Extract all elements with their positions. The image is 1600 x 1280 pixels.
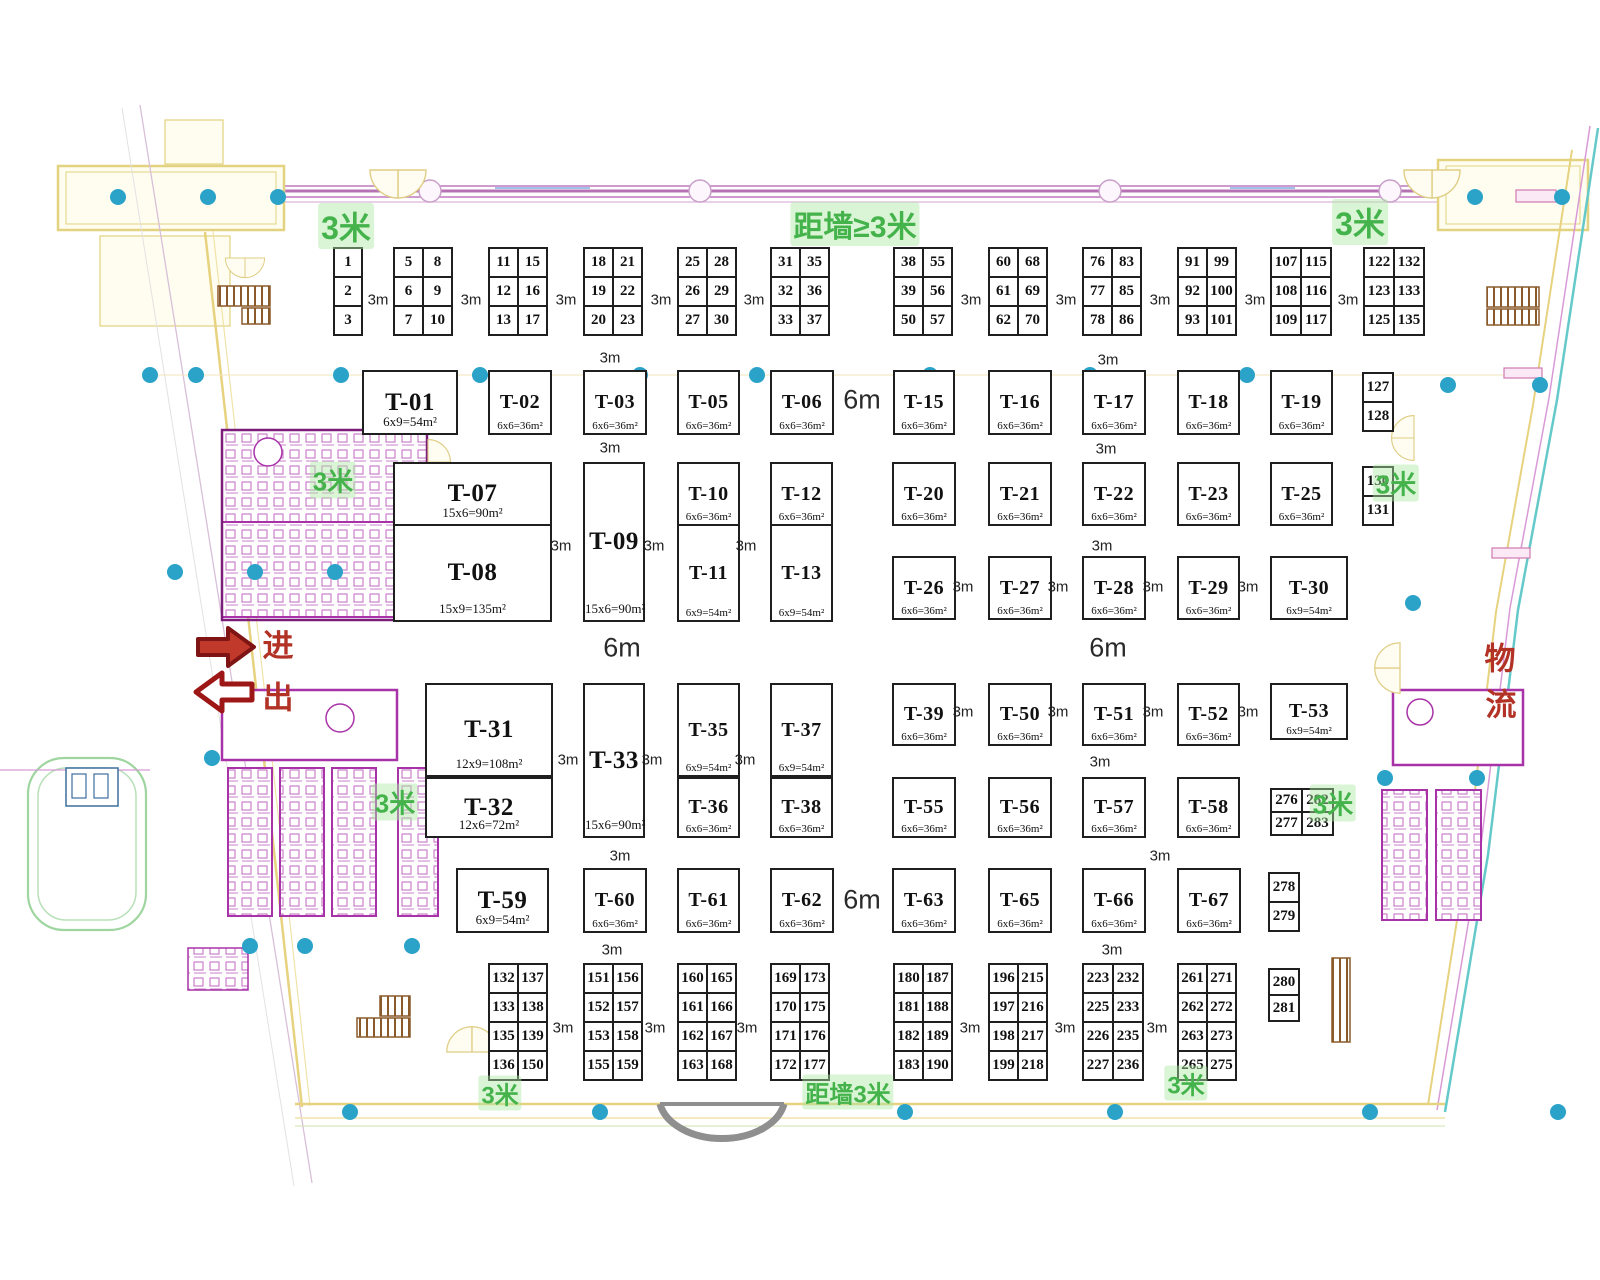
booth-T-01[interactable]: T-016x9=54m² <box>362 370 458 435</box>
booth-T-13[interactable]: T-136x9=54m² <box>770 524 833 622</box>
booth-id: T-06 <box>782 391 822 414</box>
left-ramp <box>0 758 150 930</box>
column-dot <box>749 367 765 383</box>
booth-cell-13[interactable]: 13 <box>488 305 519 336</box>
booth-cell-235[interactable]: 235 <box>1112 1021 1144 1052</box>
booth-cell-281[interactable]: 281 <box>1268 994 1300 1022</box>
booth-cell-60[interactable]: 60 <box>988 247 1019 278</box>
wall-distance-label: 3米 <box>478 1076 521 1111</box>
booth-T-66[interactable]: T-666x6=36m² <box>1082 868 1146 933</box>
booth-cell-190[interactable]: 190 <box>922 1050 953 1081</box>
column-dot <box>897 1104 913 1120</box>
booth-cell-278[interactable]: 278 <box>1268 872 1300 903</box>
booth-cell-76[interactable]: 76 <box>1082 247 1113 278</box>
exit-label: 出 <box>263 673 294 718</box>
booth-T-22[interactable]: T-226x6=36m² <box>1082 462 1146 526</box>
booth-cell-31[interactable]: 31 <box>770 247 801 278</box>
booth-T-21[interactable]: T-216x6=36m² <box>988 462 1052 526</box>
booth-cell-273[interactable]: 273 <box>1206 1021 1237 1052</box>
booth-cell-187[interactable]: 187 <box>922 963 953 994</box>
booth-id: T-07 <box>448 480 498 508</box>
booth-T-59[interactable]: T-596x9=54m² <box>456 868 549 933</box>
wall-distance-label: 3米 <box>1332 199 1388 245</box>
booth-cell-133[interactable]: 133 <box>1393 276 1425 307</box>
booth-cell-68[interactable]: 68 <box>1017 247 1048 278</box>
booth-id: T-27 <box>1000 577 1040 600</box>
booth-id: T-55 <box>904 796 944 819</box>
booth-cell-162[interactable]: 162 <box>677 1021 708 1052</box>
booth-cell-108[interactable]: 108 <box>1270 276 1302 307</box>
booth-size: 6x6=36m² <box>990 731 1050 743</box>
booth-cell-17[interactable]: 17 <box>517 305 548 336</box>
booth-T-60[interactable]: T-606x6=36m² <box>583 868 647 933</box>
booth-size: 6x6=36m² <box>1084 605 1144 617</box>
booth-cell-215[interactable]: 215 <box>1017 963 1048 994</box>
booth-cell-122[interactable]: 122 <box>1363 247 1395 278</box>
booth-size: 6x9=54m² <box>1272 725 1346 737</box>
booth-cell-101[interactable]: 101 <box>1206 305 1237 336</box>
booth-size: 6x6=36m² <box>990 511 1050 523</box>
booth-cell-100[interactable]: 100 <box>1206 276 1237 307</box>
booth-cell-176[interactable]: 176 <box>799 1021 830 1052</box>
booth-cell-29[interactable]: 29 <box>706 276 737 307</box>
booth-cell-36[interactable]: 36 <box>799 276 830 307</box>
booth-id: T-67 <box>1189 889 1229 912</box>
booth-cell-32[interactable]: 32 <box>770 276 801 307</box>
booth-id: T-17 <box>1094 391 1134 414</box>
booth-cell-77[interactable]: 77 <box>1082 276 1113 307</box>
booth-T-63[interactable]: T-636x6=36m² <box>892 868 956 933</box>
booth-id: T-16 <box>1000 391 1040 414</box>
booth-cell-115[interactable]: 115 <box>1300 247 1332 278</box>
booth-T-31[interactable]: T-3112x9=108m² <box>425 683 553 777</box>
booth-size: 6x6=36m² <box>1179 918 1239 930</box>
booth-size: 6x6=36m² <box>1084 511 1144 523</box>
wall-distance-label: 3米 <box>310 462 356 499</box>
booth-cell-153[interactable]: 153 <box>583 1021 614 1052</box>
booth-cell-216[interactable]: 216 <box>1017 992 1048 1023</box>
booth-size: 6x6=36m² <box>679 420 738 432</box>
booth-cell-8[interactable]: 8 <box>422 247 453 278</box>
booth-size: 6x6=36m² <box>990 918 1050 930</box>
booth-T-03[interactable]: T-036x6=36m² <box>583 370 647 435</box>
booth-T-67[interactable]: T-676x6=36m² <box>1177 868 1241 933</box>
dimension-label: 3m <box>1143 704 1164 721</box>
booth-T-27[interactable]: T-276x6=36m² <box>988 556 1052 620</box>
booth-cell-30[interactable]: 30 <box>706 305 737 336</box>
booth-cell-7[interactable]: 7 <box>393 305 424 336</box>
booth-id: T-35 <box>688 719 728 742</box>
booth-id: T-61 <box>688 889 728 912</box>
wall-distance-label: 3米 <box>372 784 418 821</box>
booth-cell-21[interactable]: 21 <box>612 247 643 278</box>
dimension-label: 3m <box>1092 538 1113 555</box>
booth-cell-35[interactable]: 35 <box>799 247 830 278</box>
booth-id: T-52 <box>1188 703 1228 726</box>
booth-cell-50[interactable]: 50 <box>893 305 924 336</box>
column-dot <box>1377 770 1393 786</box>
booth-cell-5[interactable]: 5 <box>393 247 424 278</box>
booth-cell-151[interactable]: 151 <box>583 963 614 994</box>
booth-id: T-65 <box>1000 889 1040 912</box>
booth-T-02[interactable]: T-026x6=36m² <box>488 370 552 435</box>
booth-T-56[interactable]: T-566x6=36m² <box>988 777 1052 838</box>
booth-T-20[interactable]: T-206x6=36m² <box>892 462 956 526</box>
booth-cell-16[interactable]: 16 <box>517 276 548 307</box>
booth-T-55[interactable]: T-556x6=36m² <box>892 777 956 838</box>
booth-id: T-33 <box>589 747 639 775</box>
dimension-label: 3m <box>1238 704 1259 721</box>
booth-cell-199[interactable]: 199 <box>988 1050 1019 1081</box>
booth-cell-161[interactable]: 161 <box>677 992 708 1023</box>
booth-cell-217[interactable]: 217 <box>1017 1021 1048 1052</box>
entry-label: 进 <box>263 621 294 666</box>
booth-cell-56[interactable]: 56 <box>922 276 953 307</box>
booth-cell-132[interactable]: 132 <box>488 963 519 994</box>
booth-cell-182[interactable]: 182 <box>893 1021 924 1052</box>
column-dot <box>592 1104 608 1120</box>
booth-cell-152[interactable]: 152 <box>583 992 614 1023</box>
booth-size: 6x6=36m² <box>1179 511 1238 523</box>
booth-cell-181[interactable]: 181 <box>893 992 924 1023</box>
booth-cell-39[interactable]: 39 <box>893 276 924 307</box>
booth-cell-137[interactable]: 137 <box>517 963 548 994</box>
booth-T-37[interactable]: T-376x9=54m² <box>770 683 833 777</box>
dimension-label: 6m <box>843 885 881 916</box>
booth-cell-261[interactable]: 261 <box>1177 963 1208 994</box>
booth-size: 6x9=54m² <box>679 762 738 774</box>
booth-T-36[interactable]: T-366x6=36m² <box>677 777 740 838</box>
booth-T-52[interactable]: T-526x6=36m² <box>1177 683 1240 746</box>
dimension-label: 3m <box>1102 942 1123 959</box>
booth-cell-117[interactable]: 117 <box>1300 305 1332 336</box>
column-dot <box>327 564 343 580</box>
booth-cell-175[interactable]: 175 <box>799 992 830 1023</box>
entry-arrow-icon <box>198 628 254 666</box>
booth-T-39[interactable]: T-396x6=36m² <box>892 683 956 746</box>
booth-size: 6x6=36m² <box>894 511 954 523</box>
booth-cell-169[interactable]: 169 <box>770 963 801 994</box>
booth-id: T-51 <box>1094 703 1134 726</box>
booth-cell-225[interactable]: 225 <box>1082 992 1114 1023</box>
booth-T-12[interactable]: T-126x6=36m² <box>770 462 833 526</box>
dimension-label: 3m <box>744 292 765 309</box>
booth-cell-158[interactable]: 158 <box>612 1021 643 1052</box>
booth-cell-272[interactable]: 272 <box>1206 992 1237 1023</box>
booth-T-25[interactable]: T-256x6=36m² <box>1270 462 1333 526</box>
booth-T-26[interactable]: T-266x6=36m² <box>892 556 956 620</box>
booth-cell-167[interactable]: 167 <box>706 1021 737 1052</box>
column-dot <box>110 189 126 205</box>
booth-id: T-50 <box>1000 703 1040 726</box>
column-dot <box>297 938 313 954</box>
booth-cell-61[interactable]: 61 <box>988 276 1019 307</box>
booth-cell-133[interactable]: 133 <box>488 992 519 1023</box>
column-dots <box>110 189 1570 1120</box>
booth-T-16[interactable]: T-166x6=36m² <box>988 370 1052 435</box>
booth-T-53[interactable]: T-536x9=54m² <box>1270 683 1348 740</box>
dimension-label: 3m <box>1055 1020 1076 1037</box>
dimension-label: 3m <box>736 538 757 555</box>
booth-cell-18[interactable]: 18 <box>583 247 614 278</box>
booth-cell-62[interactable]: 62 <box>988 305 1019 336</box>
booth-id: T-39 <box>904 703 944 726</box>
booth-cell-85[interactable]: 85 <box>1111 276 1142 307</box>
booth-cell-160[interactable]: 160 <box>677 963 708 994</box>
booth-cell-198[interactable]: 198 <box>988 1021 1019 1052</box>
booth-cell-139[interactable]: 139 <box>517 1021 548 1052</box>
dimension-label: 3m <box>610 848 631 865</box>
booth-T-08[interactable]: T-0815x9=135m² <box>393 524 552 622</box>
booth-cell-55[interactable]: 55 <box>922 247 953 278</box>
booth-cell-22[interactable]: 22 <box>612 276 643 307</box>
booth-id: T-03 <box>595 391 635 414</box>
booth-size: 6x6=36m² <box>1179 420 1238 432</box>
booth-cell-138[interactable]: 138 <box>517 992 548 1023</box>
booth-id: T-38 <box>781 796 821 819</box>
column-dot <box>472 367 488 383</box>
booth-cell-236[interactable]: 236 <box>1112 1050 1144 1081</box>
booth-cell-226[interactable]: 226 <box>1082 1021 1114 1052</box>
dimension-label: 3m <box>600 350 621 367</box>
wall-distance-label: 3米 <box>318 203 374 249</box>
booth-cell-70[interactable]: 70 <box>1017 305 1048 336</box>
booth-cell-168[interactable]: 168 <box>706 1050 737 1081</box>
booth-T-09[interactable]: T-0915x6=90m² <box>583 462 645 622</box>
booth-cell-19[interactable]: 19 <box>583 276 614 307</box>
dimension-label: 3m <box>1338 292 1359 309</box>
booth-id: T-63 <box>904 889 944 912</box>
booth-T-30[interactable]: T-306x9=54m² <box>1270 556 1348 620</box>
booth-cell-86[interactable]: 86 <box>1111 305 1142 336</box>
booth-cell-166[interactable]: 166 <box>706 992 737 1023</box>
booth-cell-223[interactable]: 223 <box>1082 963 1114 994</box>
booth-cell-91[interactable]: 91 <box>1177 247 1208 278</box>
booth-id: T-19 <box>1281 391 1321 414</box>
booth-size: 6x6=36m² <box>772 918 832 930</box>
booth-cell-156[interactable]: 156 <box>612 963 643 994</box>
column-dot <box>1440 377 1456 393</box>
booth-cell-1[interactable]: 1 <box>333 247 363 278</box>
booth-id: T-56 <box>1000 796 1040 819</box>
booth-T-18[interactable]: T-186x6=36m² <box>1177 370 1240 435</box>
booth-cell-15[interactable]: 15 <box>517 247 548 278</box>
booth-cell-262[interactable]: 262 <box>1177 992 1208 1023</box>
booth-cell-27[interactable]: 27 <box>677 305 708 336</box>
booth-T-35[interactable]: T-356x9=54m² <box>677 683 740 777</box>
booth-cell-165[interactable]: 165 <box>706 963 737 994</box>
booth-cell-159[interactable]: 159 <box>612 1050 643 1081</box>
dimension-label: 3m <box>953 579 974 596</box>
booth-cell-93[interactable]: 93 <box>1177 305 1208 336</box>
column-dot <box>1532 377 1548 393</box>
booth-cell-128[interactable]: 128 <box>1362 401 1394 432</box>
booth-cell-57[interactable]: 57 <box>922 305 953 336</box>
booth-cell-171[interactable]: 171 <box>770 1021 801 1052</box>
booth-T-28[interactable]: T-286x6=36m² <box>1082 556 1146 620</box>
booth-cell-132[interactable]: 132 <box>1393 247 1425 278</box>
booth-cell-183[interactable]: 183 <box>893 1050 924 1081</box>
booth-cell-155[interactable]: 155 <box>583 1050 614 1081</box>
booth-id: T-60 <box>595 889 635 912</box>
dimension-label: 3m <box>368 292 389 309</box>
booth-cell-10[interactable]: 10 <box>422 305 453 336</box>
dimension-label: 3m <box>960 1020 981 1037</box>
booth-T-06[interactable]: T-066x6=36m² <box>770 370 834 435</box>
booth-size: 6x6=36m² <box>1272 511 1331 523</box>
booth-cell-127[interactable]: 127 <box>1362 372 1394 403</box>
booth-cell-163[interactable]: 163 <box>677 1050 708 1081</box>
booth-id: T-09 <box>589 528 639 556</box>
booth-cell-196[interactable]: 196 <box>988 963 1019 994</box>
booth-cell-173[interactable]: 173 <box>799 963 830 994</box>
booth-T-51[interactable]: T-516x6=36m² <box>1082 683 1146 746</box>
booth-cell-227[interactable]: 227 <box>1082 1050 1114 1081</box>
column-dot <box>1362 1104 1378 1120</box>
booth-size: 6x6=36m² <box>679 511 738 523</box>
restroom-right <box>1382 690 1523 920</box>
booth-cell-92[interactable]: 92 <box>1177 276 1208 307</box>
wall-distance-label: 距墙3米 <box>802 1075 893 1110</box>
booth-cell-232[interactable]: 232 <box>1112 963 1144 994</box>
booth-cell-188[interactable]: 188 <box>922 992 953 1023</box>
booth-cell-9[interactable]: 9 <box>422 276 453 307</box>
booth-cell-20[interactable]: 20 <box>583 305 614 336</box>
booth-size: 6x9=54m² <box>772 607 831 619</box>
booth-cell-99[interactable]: 99 <box>1206 247 1237 278</box>
booth-cell-280[interactable]: 280 <box>1268 968 1300 996</box>
booth-cell-69[interactable]: 69 <box>1017 276 1048 307</box>
booth-cell-116[interactable]: 116 <box>1300 276 1332 307</box>
booth-T-10[interactable]: T-106x6=36m² <box>677 462 740 526</box>
booth-cell-197[interactable]: 197 <box>988 992 1019 1023</box>
booth-cell-12[interactable]: 12 <box>488 276 519 307</box>
booth-cell-38[interactable]: 38 <box>893 247 924 278</box>
booth-T-15[interactable]: T-156x6=36m² <box>893 370 955 435</box>
column-dot <box>1405 595 1421 611</box>
booth-cell-276[interactable]: 276 <box>1270 788 1303 813</box>
booth-T-58[interactable]: T-586x6=36m² <box>1177 777 1240 838</box>
booth-T-32[interactable]: T-3212x6=72m² <box>425 777 553 838</box>
booth-id: T-57 <box>1094 796 1134 819</box>
booth-size: 6x9=54m² <box>458 912 547 928</box>
booth-cell-135[interactable]: 135 <box>1393 305 1425 336</box>
booth-size: 6x6=36m² <box>1179 731 1238 743</box>
column-dot <box>204 750 220 766</box>
booth-T-61[interactable]: T-616x6=36m² <box>677 868 740 933</box>
dimension-label: 3m <box>1143 579 1164 596</box>
booth-size: 6x6=36m² <box>679 823 738 835</box>
entrance-arc <box>660 1104 784 1139</box>
dimension-label: 3m <box>642 752 663 769</box>
booth-size: 6x6=36m² <box>679 918 738 930</box>
booth-T-29[interactable]: T-296x6=36m² <box>1177 556 1240 620</box>
booth-cell-25[interactable]: 25 <box>677 247 708 278</box>
dimension-label: 3m <box>735 752 756 769</box>
booth-size: 6x9=54m² <box>772 762 831 774</box>
dimension-label: 3m <box>737 1020 758 1037</box>
booth-cell-26[interactable]: 26 <box>677 276 708 307</box>
booth-size: 6x6=36m² <box>990 420 1050 432</box>
booth-size: 6x6=36m² <box>490 420 550 432</box>
booth-cell-157[interactable]: 157 <box>612 992 643 1023</box>
booth-size: 6x9=54m² <box>679 607 738 619</box>
booth-T-23[interactable]: T-236x6=36m² <box>1177 462 1240 526</box>
booth-cell-277[interactable]: 277 <box>1270 811 1303 836</box>
booth-cell-123[interactable]: 123 <box>1363 276 1395 307</box>
booth-cell-28[interactable]: 28 <box>706 247 737 278</box>
booth-cell-180[interactable]: 180 <box>893 963 924 994</box>
booth-cell-6[interactable]: 6 <box>393 276 424 307</box>
booth-cell-189[interactable]: 189 <box>922 1021 953 1052</box>
booth-cell-218[interactable]: 218 <box>1017 1050 1048 1081</box>
column-dot <box>1239 367 1255 383</box>
wall-distance-label: 3米 <box>1373 465 1419 502</box>
booth-T-19[interactable]: T-196x6=36m² <box>1270 370 1333 435</box>
booth-id: T-12 <box>781 483 821 506</box>
booth-T-17[interactable]: T-176x6=36m² <box>1082 370 1146 435</box>
booth-T-38[interactable]: T-386x6=36m² <box>770 777 833 838</box>
dimension-label: 3m <box>600 440 621 457</box>
booth-T-50[interactable]: T-506x6=36m² <box>988 683 1052 746</box>
booth-cell-150[interactable]: 150 <box>517 1050 548 1081</box>
booth-T-65[interactable]: T-656x6=36m² <box>988 868 1052 933</box>
booth-id: T-66 <box>1094 889 1134 912</box>
dimension-label: 3m <box>1147 1020 1168 1037</box>
dimension-label: 3m <box>461 292 482 309</box>
booth-T-57[interactable]: T-576x6=36m² <box>1082 777 1146 838</box>
booth-size: 15x6=90m² <box>585 601 643 617</box>
booth-cell-279[interactable]: 279 <box>1268 901 1300 932</box>
booth-size: 15x6=90m² <box>585 817 643 833</box>
booth-cell-109[interactable]: 109 <box>1270 305 1302 336</box>
booth-cell-233[interactable]: 233 <box>1112 992 1144 1023</box>
dimension-label: 3m <box>1150 292 1171 309</box>
booth-cell-78[interactable]: 78 <box>1082 305 1113 336</box>
booth-size: 6x6=36m² <box>772 420 832 432</box>
booth-T-11[interactable]: T-116x9=54m² <box>677 524 740 622</box>
booth-id: T-01 <box>385 389 435 417</box>
booth-cell-172[interactable]: 172 <box>770 1050 801 1081</box>
booth-id: T-22 <box>1094 483 1134 506</box>
booth-cell-263[interactable]: 263 <box>1177 1021 1208 1052</box>
booth-id: T-13 <box>781 562 821 585</box>
booth-cell-107[interactable]: 107 <box>1270 247 1302 278</box>
booth-cell-125[interactable]: 125 <box>1363 305 1395 336</box>
booth-cell-33[interactable]: 33 <box>770 305 801 336</box>
booth-cell-11[interactable]: 11 <box>488 247 519 278</box>
booth-T-62[interactable]: T-626x6=36m² <box>770 868 834 933</box>
dimension-label: 3m <box>1048 579 1069 596</box>
dimension-label: 3m <box>651 292 672 309</box>
booth-cell-275[interactable]: 275 <box>1206 1050 1237 1081</box>
booth-cell-23[interactable]: 23 <box>612 305 643 336</box>
booth-cell-271[interactable]: 271 <box>1206 963 1237 994</box>
booth-cell-37[interactable]: 37 <box>799 305 830 336</box>
booth-cell-83[interactable]: 83 <box>1111 247 1142 278</box>
booth-T-33[interactable]: T-3315x6=90m² <box>583 683 645 838</box>
dimension-label: 3m <box>1056 292 1077 309</box>
booth-T-05[interactable]: T-056x6=36m² <box>677 370 740 435</box>
dimension-label: 3m <box>602 942 623 959</box>
booth-id: T-25 <box>1281 483 1321 506</box>
booth-T-07[interactable]: T-0715x6=90m² <box>393 462 552 526</box>
booth-cell-170[interactable]: 170 <box>770 992 801 1023</box>
booth-size: 6x9=54m² <box>364 414 456 430</box>
booth-cell-3[interactable]: 3 <box>333 305 363 336</box>
booth-cell-135[interactable]: 135 <box>488 1021 519 1052</box>
booth-cell-2[interactable]: 2 <box>333 276 363 307</box>
